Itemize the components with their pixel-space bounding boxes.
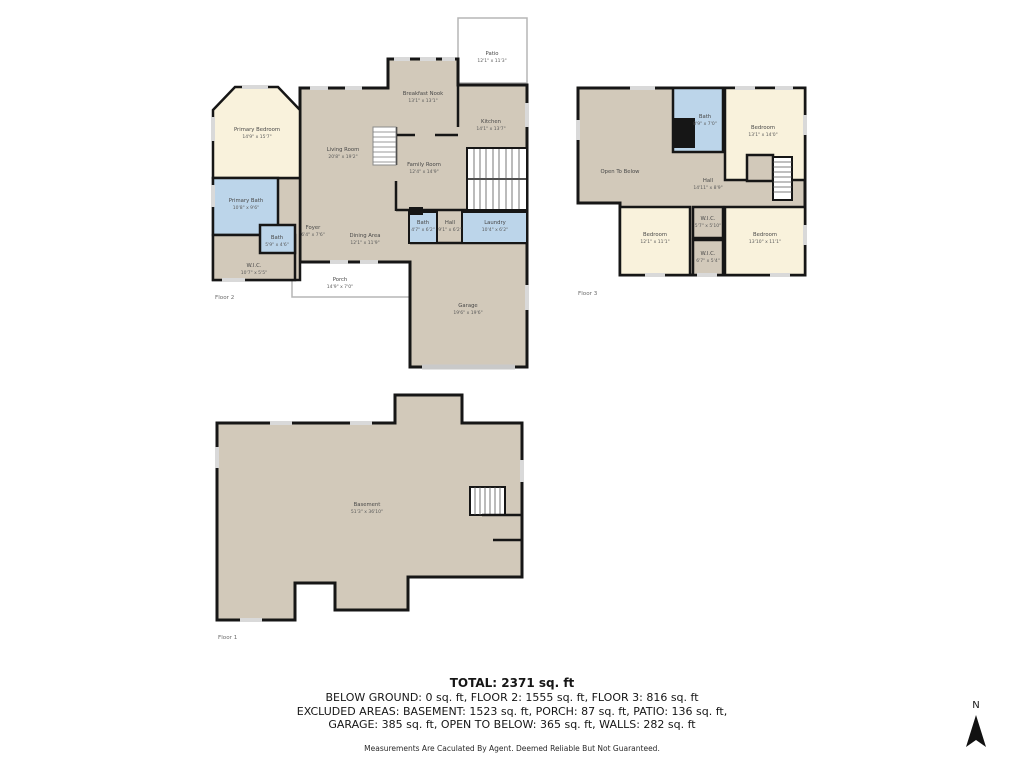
room-dims: 10'8" x 9'6"	[233, 205, 259, 211]
room-dims: 5'7" x 5'10"	[695, 223, 721, 229]
room-label: Breakfast Nook	[403, 91, 444, 97]
room-dims: 8'9" x 7'0"	[693, 121, 717, 127]
room-dims: 13'1" x 14'0"	[748, 132, 777, 138]
room-dims: 51'3" x 36'10"	[351, 509, 383, 515]
room-dims: 4'7" x 6'2"	[411, 227, 435, 233]
room-label: Basement	[354, 502, 381, 508]
room-label: Hall	[445, 220, 455, 226]
room-label: Open To Below	[600, 169, 640, 175]
stair-landing	[747, 155, 773, 181]
room-label: Dining Area	[350, 233, 381, 239]
area-summary: TOTAL: 2371 sq. ft BELOW GROUND: 0 sq. f…	[0, 676, 1024, 760]
north-label: N	[956, 700, 996, 711]
room-dims: 13'1" x 13'1"	[408, 98, 437, 104]
room-label: Kitchen	[481, 119, 501, 125]
room-wic-1	[693, 207, 723, 238]
floor-areas-line: BELOW GROUND: 0 sq. ft, FLOOR 2: 1555 sq…	[0, 691, 1024, 705]
porch-area	[292, 262, 410, 297]
excluded-areas-line2: GARAGE: 385 sq. ft, OPEN TO BELOW: 365 s…	[0, 718, 1024, 732]
room-label: Primary Bath	[229, 198, 263, 204]
north-compass: N	[956, 700, 996, 753]
room-dims: 14'9" x 7'0"	[327, 284, 353, 290]
room-label: Primary Bedroom	[234, 127, 280, 133]
stairs-icon	[470, 487, 505, 515]
room-label: Patio	[486, 51, 499, 57]
room-label: Family Room	[407, 162, 441, 168]
floor-2-plan: Patio 12'1" x 11'3" Breakfast Nook 13'1"…	[210, 15, 530, 372]
floor-3-plan: Open To Below Bath 8'9" x 7'0" Bedroom 1…	[575, 85, 815, 300]
room-label: Bedroom	[751, 125, 775, 131]
floorplan-sheet: Patio 12'1" x 11'3" Breakfast Nook 13'1"…	[0, 0, 1024, 768]
closet-block	[409, 207, 423, 215]
floor-3-caption: Floor 3	[578, 291, 598, 297]
room-dims: 5'9" x 4'6"	[265, 242, 289, 248]
north-arrow-icon	[964, 713, 988, 749]
room-dims: 12'1" x 11'9"	[350, 240, 379, 246]
room-dims: 12'4" x 14'9"	[409, 169, 438, 175]
room-label: W.I.C.	[247, 263, 262, 269]
room-label: Bedroom	[753, 232, 777, 238]
room-label: W.I.C.	[701, 251, 716, 257]
room-label: Garage	[458, 303, 477, 309]
room-dims: 14'1" x 13'7"	[476, 126, 505, 132]
closet-block	[673, 118, 695, 148]
floor-2-caption: Floor 2	[215, 295, 234, 301]
room-label: Bath	[417, 220, 429, 226]
room-dims: 9'1" x 6'2"	[438, 227, 462, 233]
stairs-down-icon	[373, 127, 396, 165]
room-dims: 6'7" x 5'4"	[696, 258, 720, 264]
stairs-icon	[773, 157, 792, 200]
room-dims: 14'11" x 8'9"	[693, 185, 722, 191]
room-dims: 10'7" x 5'5"	[241, 270, 267, 276]
room-label: Bath	[271, 235, 283, 241]
room-label: Laundry	[484, 220, 506, 226]
room-dims: 12'1" x 11'1"	[640, 239, 669, 245]
disclaimer-text: Measurements Are Caculated By Agent. Dee…	[0, 744, 1024, 753]
room-dims: 19'6" x 19'6"	[453, 310, 482, 316]
room-wic-2	[693, 240, 723, 275]
room-dims: 12'1" x 11'3"	[477, 58, 506, 64]
room-dims: 13'10" x 11'1"	[749, 239, 781, 245]
total-area: TOTAL: 2371 sq. ft	[0, 676, 1024, 690]
floor-1-caption: Floor 1	[218, 635, 238, 641]
excluded-areas-line: EXCLUDED AREAS: BASEMENT: 1523 sq. ft, P…	[0, 705, 1024, 719]
room-label: Hall	[703, 178, 713, 184]
floor-1-plan: Basement 51'3" x 36'10" Floor 1	[210, 390, 535, 645]
room-dims: 6'4" x 7'6"	[301, 232, 325, 238]
room-dims: 20'8" x 19'2"	[328, 154, 357, 160]
stairs-icon	[467, 148, 527, 210]
room-label: Bath	[699, 114, 711, 120]
room-label: W.I.C.	[701, 216, 716, 222]
room-label: Porch	[333, 277, 348, 283]
room-label: Foyer	[306, 225, 321, 231]
room-dims: 10'4" x 6'2"	[482, 227, 508, 233]
room-label: Living Room	[327, 147, 360, 153]
room-label: Bedroom	[643, 232, 667, 238]
room-dims: 14'9" x 15'7"	[242, 134, 271, 140]
